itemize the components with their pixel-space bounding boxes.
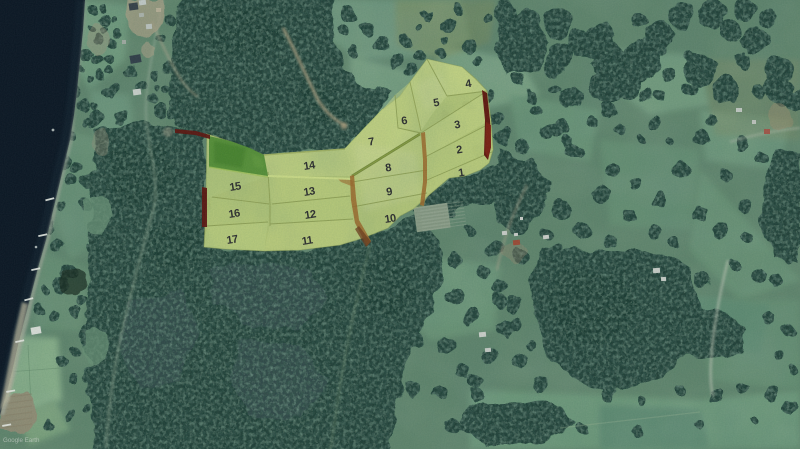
svg-text:Google Earth: Google Earth bbox=[3, 437, 40, 444]
